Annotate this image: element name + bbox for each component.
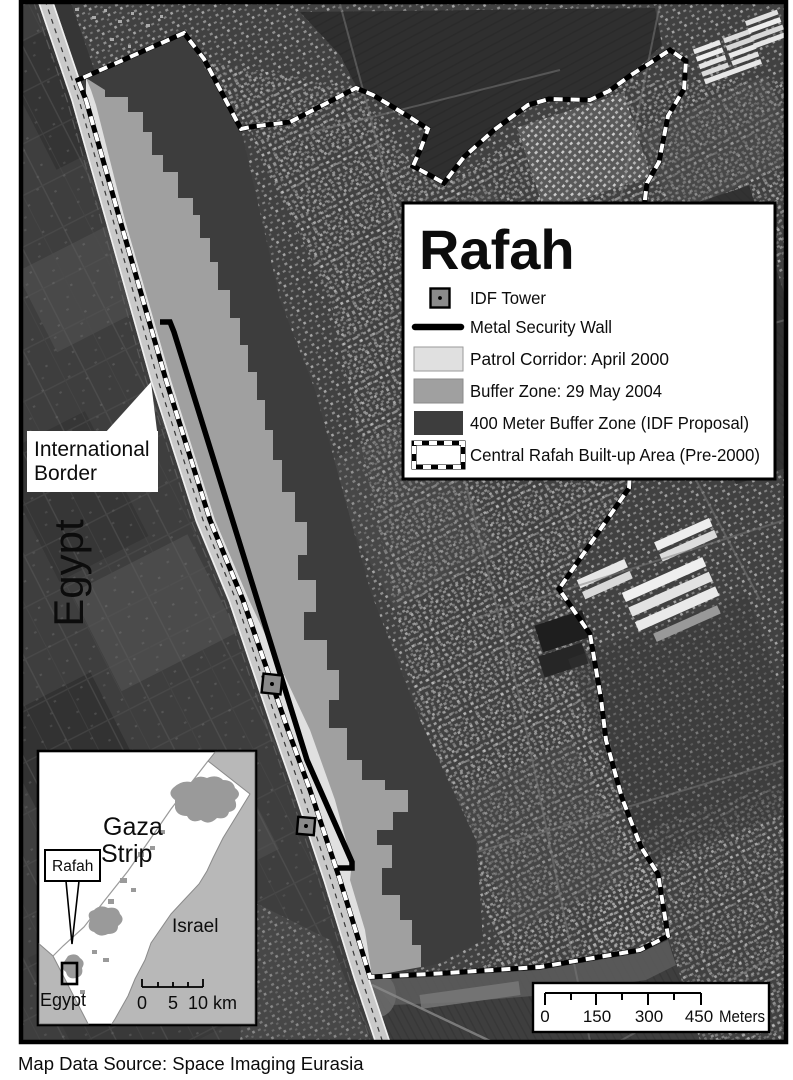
svg-text:Border: Border <box>34 462 97 485</box>
svg-text:Egypt: Egypt <box>45 519 92 627</box>
svg-text:Buffer Zone: 29 May 2004: Buffer Zone: 29 May 2004 <box>470 381 662 401</box>
svg-text:Metal Security Wall: Metal Security Wall <box>470 317 612 337</box>
svg-text:Rafah: Rafah <box>419 218 575 281</box>
svg-text:Strip: Strip <box>101 840 152 868</box>
svg-text:Patrol Corridor: April 2000: Patrol Corridor: April 2000 <box>470 349 669 369</box>
svg-text:5: 5 <box>168 993 178 1013</box>
svg-text:Central Rafah Built-up Area (P: Central Rafah Built-up Area (Pre-2000) <box>470 445 760 465</box>
svg-text:150: 150 <box>583 1007 611 1026</box>
svg-text:Map Data Source: Space Imaging: Map Data Source: Space Imaging Eurasia <box>18 1053 364 1074</box>
svg-text:0: 0 <box>137 993 147 1013</box>
svg-text:300: 300 <box>635 1007 663 1026</box>
svg-text:Rafah: Rafah <box>52 858 93 875</box>
svg-text:450: 450 <box>685 1007 713 1026</box>
svg-text:Israel: Israel <box>172 916 218 937</box>
svg-text:International: International <box>34 438 150 461</box>
svg-text:Meters: Meters <box>719 1007 765 1026</box>
svg-text:Egypt: Egypt <box>40 990 86 1010</box>
svg-text:IDF Tower: IDF Tower <box>470 288 546 308</box>
svg-text:0: 0 <box>540 1007 549 1026</box>
svg-text:400 Meter Buffer Zone (IDF Pro: 400 Meter Buffer Zone (IDF Proposal) <box>470 413 749 433</box>
svg-text:10 km: 10 km <box>188 993 237 1013</box>
svg-text:Gaza: Gaza <box>103 813 163 841</box>
